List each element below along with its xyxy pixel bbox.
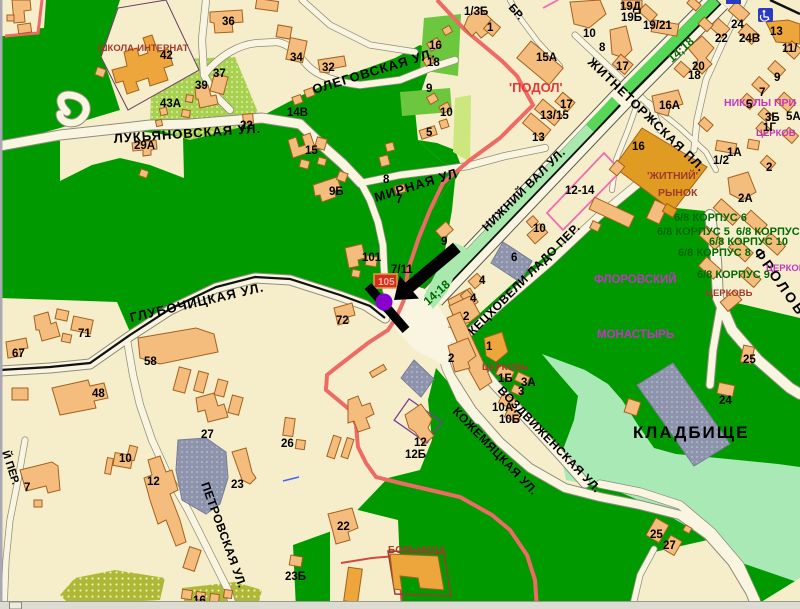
svg-text:6/8 КОРПУС 6: 6/8 КОРПУС 6 [674,212,747,224]
svg-text:10: 10 [583,28,596,40]
svg-text:22: 22 [240,120,253,132]
svg-text:101: 101 [362,252,382,264]
svg-text:9: 9 [774,72,780,84]
svg-text:9Б: 9Б [329,186,344,198]
svg-text:5: 5 [426,127,433,139]
svg-text:18: 18 [688,70,701,82]
svg-text:27: 27 [663,540,676,552]
svg-text:13: 13 [770,26,783,38]
svg-text:БОЛЬНИЦА: БОЛЬНИЦА [388,545,446,556]
svg-text:36: 36 [222,16,235,28]
svg-text:23: 23 [231,479,244,491]
svg-text:1Г: 1Г [763,122,776,134]
svg-text:7: 7 [24,482,30,494]
svg-text:1Б: 1Б [498,373,513,385]
svg-text:37: 37 [213,68,226,80]
svg-text:ШКОЛА-ИНТЕРНАТ: ШКОЛА-ИНТЕРНАТ [98,43,189,54]
svg-text:12Б: 12Б [405,449,426,461]
svg-text:12-14: 12-14 [565,185,595,197]
svg-text:9: 9 [441,236,447,248]
svg-text:5: 5 [746,99,753,111]
svg-text:5А: 5А [786,111,800,123]
svg-text:58: 58 [144,356,157,368]
svg-text:10: 10 [533,223,546,235]
svg-text:13/15: 13/15 [540,110,569,122]
svg-text:КЛАДБИЩЕ: КЛАДБИЩЕ [633,423,749,442]
svg-text:16: 16 [632,141,645,153]
svg-text:19/21: 19/21 [643,20,672,32]
svg-text:27: 27 [201,429,214,441]
svg-text:1: 1 [486,341,493,353]
svg-text:67: 67 [12,348,25,360]
svg-text:7: 7 [396,194,402,206]
svg-text:ФЛОРОВСКИЙ: ФЛОРОВСКИЙ [594,273,677,286]
svg-text:2А: 2А [738,193,753,205]
svg-text:1А: 1А [727,147,742,159]
svg-text:9: 9 [426,83,432,95]
svg-text:12: 12 [414,437,427,449]
svg-text:29А: 29А [134,140,155,152]
svg-text:18: 18 [427,57,440,69]
svg-text:24: 24 [731,19,744,31]
svg-text:19Б: 19Б [621,12,642,24]
svg-text:10А: 10А [492,402,513,414]
svg-text:25: 25 [743,354,756,366]
svg-text:1: 1 [487,22,494,34]
svg-text:7: 7 [759,87,765,99]
svg-text:8: 8 [383,174,390,186]
svg-text:32: 32 [322,62,335,74]
svg-text:10: 10 [119,453,132,465]
svg-text:4: 4 [470,293,477,305]
svg-text:16: 16 [429,40,442,52]
svg-text:11/: 11/ [782,43,798,55]
svg-text:ЦЕРКОВЬ: ЦЕРКОВЬ [482,362,529,373]
svg-text:1/2: 1/2 [713,155,729,167]
svg-text:РЫНОК: РЫНОК [658,187,698,199]
svg-text:34: 34 [290,52,303,64]
svg-text:24В: 24В [739,33,760,45]
svg-text:39: 39 [195,80,208,92]
svg-text:2: 2 [766,162,772,174]
svg-text:2: 2 [463,311,469,323]
svg-text:'ПОДОЛ': 'ПОДОЛ' [509,80,563,95]
svg-text:10: 10 [440,107,453,119]
svg-text:15А: 15А [536,52,557,64]
svg-text:1/3Б: 1/3Б [464,6,488,18]
svg-text:6/8 КОРПУС 8: 6/8 КОРПУС 8 [678,247,751,259]
svg-text:23Б: 23Б [285,571,306,583]
svg-text:48: 48 [92,388,105,400]
svg-text:105: 105 [378,277,395,288]
svg-text:ЦЕРКОВЬ: ЦЕРКОВЬ [766,263,800,274]
svg-text:МОНАСТЫРЬ: МОНАСТЫРЬ [597,329,674,341]
svg-text:14В: 14В [287,107,308,119]
svg-text:2: 2 [448,353,454,365]
svg-text:16А: 16А [659,100,680,112]
svg-text:12: 12 [147,476,160,488]
svg-text:6: 6 [511,252,517,264]
svg-text:'ЖИТНИЙ': 'ЖИТНИЙ' [647,169,698,182]
svg-text:3: 3 [518,386,524,398]
svg-text:22: 22 [715,33,728,45]
svg-text:ЦЕРКОВЬ: ЦЕРКОВЬ [706,288,753,299]
svg-text:24: 24 [719,395,732,407]
svg-text:10Б: 10Б [499,414,520,426]
svg-text:13: 13 [532,132,545,144]
svg-text:72: 72 [336,315,349,327]
svg-text:71: 71 [78,328,91,340]
svg-text:15: 15 [305,145,318,157]
svg-text:42: 42 [160,50,173,62]
svg-text:6/8 КОРПУС 9: 6/8 КОРПУС 9 [697,269,770,281]
svg-text:43А: 43А [160,98,181,110]
svg-text:8: 8 [599,42,606,54]
svg-text:26: 26 [281,438,294,450]
svg-text:22: 22 [337,521,350,533]
svg-text:25: 25 [650,529,663,541]
svg-text:17: 17 [616,61,629,73]
svg-text:4: 4 [479,275,486,287]
